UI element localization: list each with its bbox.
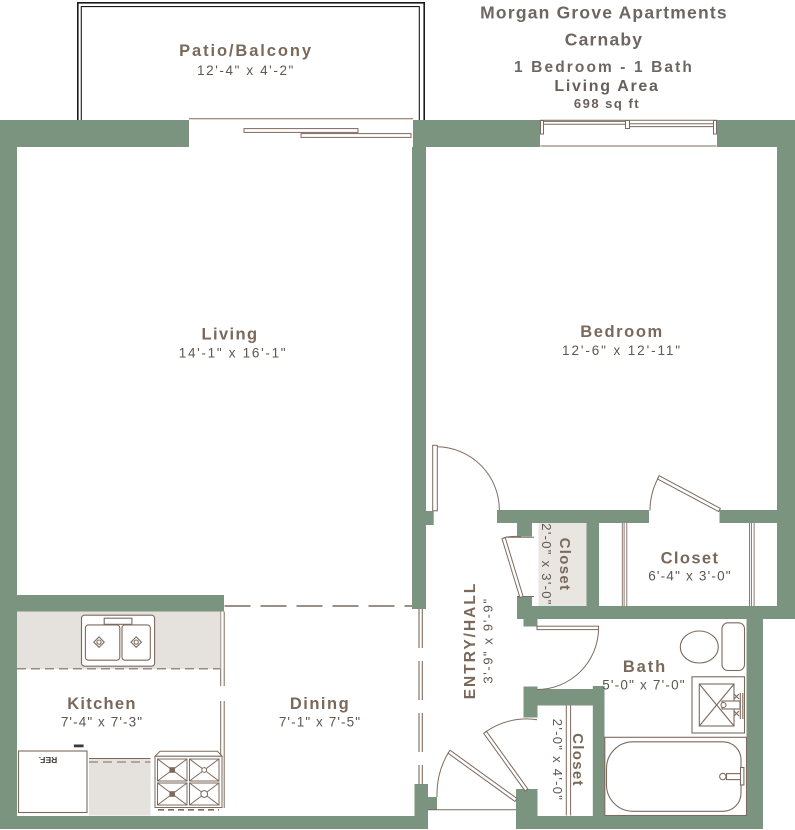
svg-text:5'-0" x 7'-0": 5'-0" x 7'-0" <box>602 678 686 693</box>
svg-text:Closet: Closet <box>661 550 720 568</box>
svg-text:Living: Living <box>202 326 259 344</box>
svg-text:REF.: REF. <box>39 755 57 765</box>
svg-text:Bath: Bath <box>623 658 667 676</box>
svg-text:Kitchen: Kitchen <box>67 695 137 713</box>
svg-text:Morgan Grove Apartments: Morgan Grove Apartments <box>480 3 728 23</box>
svg-text:Closet: Closet <box>556 538 573 592</box>
svg-text:Carnaby: Carnaby <box>565 30 643 50</box>
svg-text:12'-6" x 12'-11": 12'-6" x 12'-11" <box>562 343 682 358</box>
svg-text:Closet: Closet <box>569 733 586 787</box>
svg-text:Bedroom: Bedroom <box>580 323 664 341</box>
svg-text:6'-4" x 3'-0": 6'-4" x 3'-0" <box>648 569 732 584</box>
svg-text:2'-0" x 4'-0": 2'-0" x 4'-0" <box>550 719 565 801</box>
svg-text:7'-1" x 7'-5": 7'-1" x 7'-5" <box>279 715 361 730</box>
svg-text:3'-9" x 9'-9": 3'-9" x 9'-9" <box>481 597 496 683</box>
svg-text:Dining: Dining <box>290 695 350 713</box>
svg-text:12'-4" x 4'-2": 12'-4" x 4'-2" <box>197 63 295 78</box>
svg-text:ENTRY/HALL: ENTRY/HALL <box>462 582 479 700</box>
svg-text:Patio/Balcony: Patio/Balcony <box>179 42 313 60</box>
svg-text:698 sq ft: 698 sq ft <box>574 96 640 111</box>
svg-text:7'-4" x 7'-3": 7'-4" x 7'-3" <box>61 715 143 730</box>
svg-text:2'-0" x 3'-0": 2'-0" x 3'-0" <box>539 523 554 605</box>
svg-text:14'-1" x 16'-1": 14'-1" x 16'-1" <box>179 346 288 361</box>
svg-text:Living Area: Living Area <box>554 78 659 95</box>
svg-text:1 Bedroom - 1 Bath: 1 Bedroom - 1 Bath <box>514 59 694 76</box>
